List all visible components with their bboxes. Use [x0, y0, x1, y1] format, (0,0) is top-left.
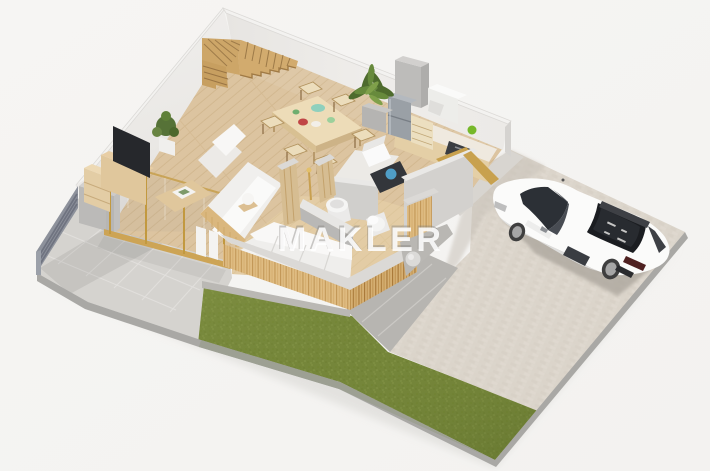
svg-text:MAKLER: MAKLER: [278, 221, 444, 259]
